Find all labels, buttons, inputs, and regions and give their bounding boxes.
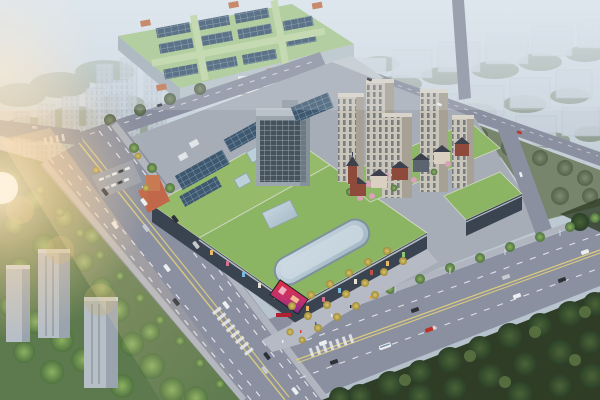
aerial-rendering-scene xyxy=(0,0,600,400)
corner-sign xyxy=(276,313,291,317)
rendering-viewport: Aerial rendering of a mixed-use commerci… xyxy=(0,0,600,400)
